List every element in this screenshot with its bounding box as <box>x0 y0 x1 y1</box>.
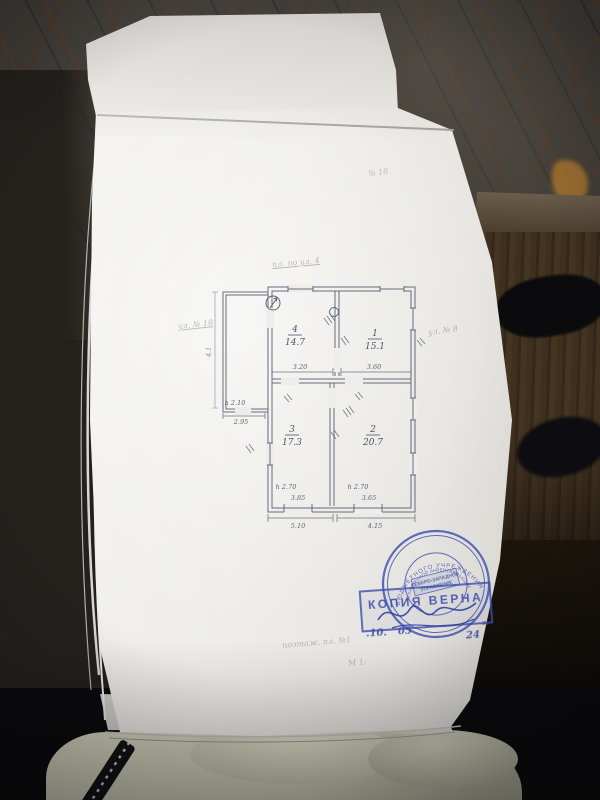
floor-plan-drawing: 4 14.7 1 15.1 3 17.3 2 20.7 3.20 3.60 3.… <box>185 248 455 548</box>
dim-side-left: 4.1 <box>205 347 213 358</box>
room-height-right: h 2.70 <box>348 483 369 491</box>
room-4-area: 14.7 <box>285 338 305 348</box>
plan-openings <box>235 285 417 514</box>
pencil-note-bottom-2: М 1: <box>348 657 367 668</box>
room-1-number: 1 <box>372 329 378 339</box>
stamp-date-day: .10. <box>366 627 387 639</box>
stamp-year-suffix: г. <box>482 618 488 627</box>
room-3-number: 3 <box>289 425 295 435</box>
paper-stack-bottom-lines <box>95 712 475 746</box>
room-height-left: h 2.70 <box>276 483 297 491</box>
stove-icon <box>330 308 339 317</box>
room-2-number: 2 <box>369 425 376 435</box>
room-2-area: 20.7 <box>362 438 383 448</box>
plan-walls <box>223 287 415 512</box>
dim-inner-bottom-left: 3.85 <box>291 494 305 502</box>
dim-mid-left: 3.20 <box>293 363 307 371</box>
dim-mid-right: 3.60 <box>367 363 381 371</box>
stamp-date-year: 24 <box>466 630 481 642</box>
dim-inner-bottom-right: 3.65 <box>362 494 376 502</box>
dim-bottom-left: 5.10 <box>291 522 305 530</box>
annex-height-label: h 2.10 <box>225 399 246 407</box>
stamp-date-month: 05 <box>398 626 412 638</box>
room-4-number: 4 <box>291 325 298 335</box>
plan-windows <box>267 286 416 512</box>
room-3-area: 17.3 <box>282 438 302 448</box>
room-1-area: 15.1 <box>365 342 385 352</box>
photo-of-floor-plan-document: 4 14.7 1 15.1 3 17.3 2 20.7 3.20 3.60 3.… <box>0 0 600 800</box>
annex-width-label: 2.95 <box>233 418 248 426</box>
